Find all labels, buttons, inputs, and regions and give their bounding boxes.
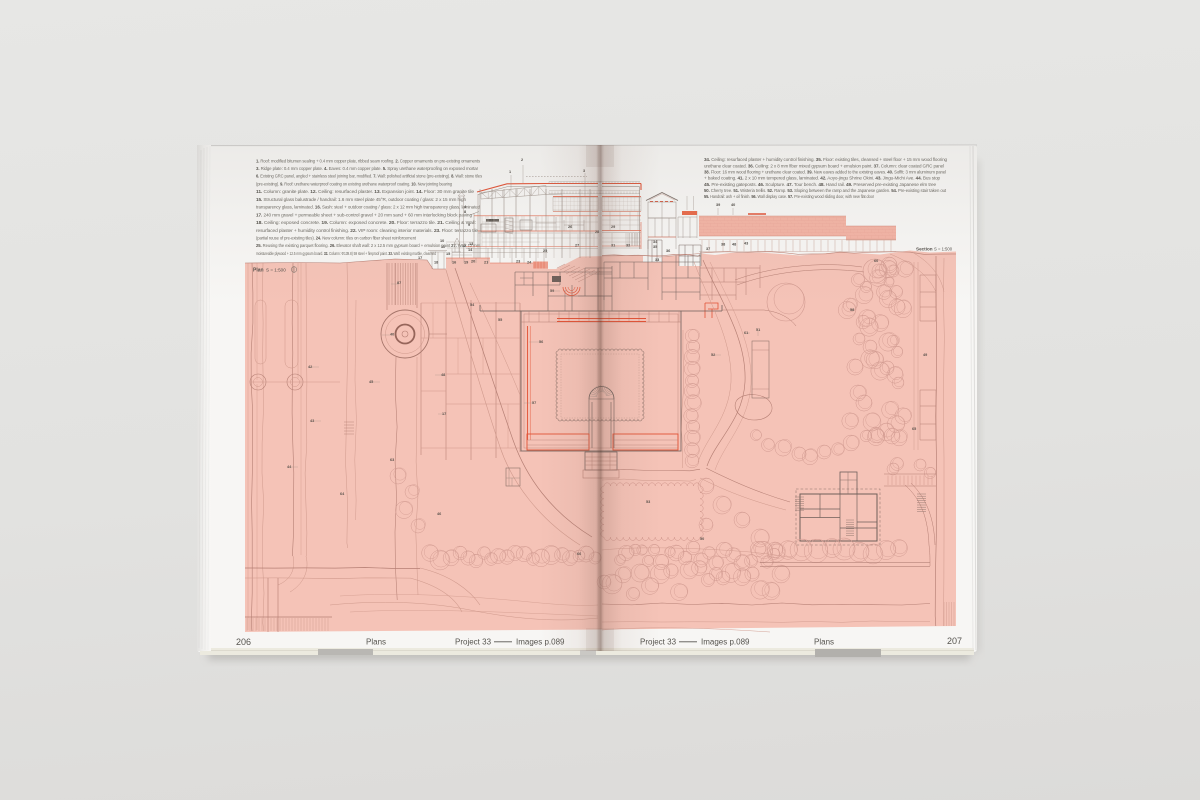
svg-text:Project 33: Project 33 <box>455 638 492 647</box>
svg-text:40: 40 <box>390 333 394 337</box>
svg-text:206: 206 <box>236 637 251 647</box>
svg-text:Plans: Plans <box>366 638 386 647</box>
svg-text:Plans: Plans <box>814 638 834 647</box>
svg-text:65: 65 <box>912 427 916 431</box>
svg-text:207: 207 <box>947 636 962 646</box>
svg-text:55: 55 <box>498 318 502 322</box>
svg-text:58: 58 <box>850 308 854 312</box>
svg-text:50: 50 <box>700 537 704 541</box>
svg-text:46: 46 <box>437 512 441 516</box>
svg-text:Images p.089: Images p.089 <box>701 638 750 647</box>
svg-text:63: 63 <box>390 458 394 462</box>
svg-text:49: 49 <box>923 353 927 357</box>
